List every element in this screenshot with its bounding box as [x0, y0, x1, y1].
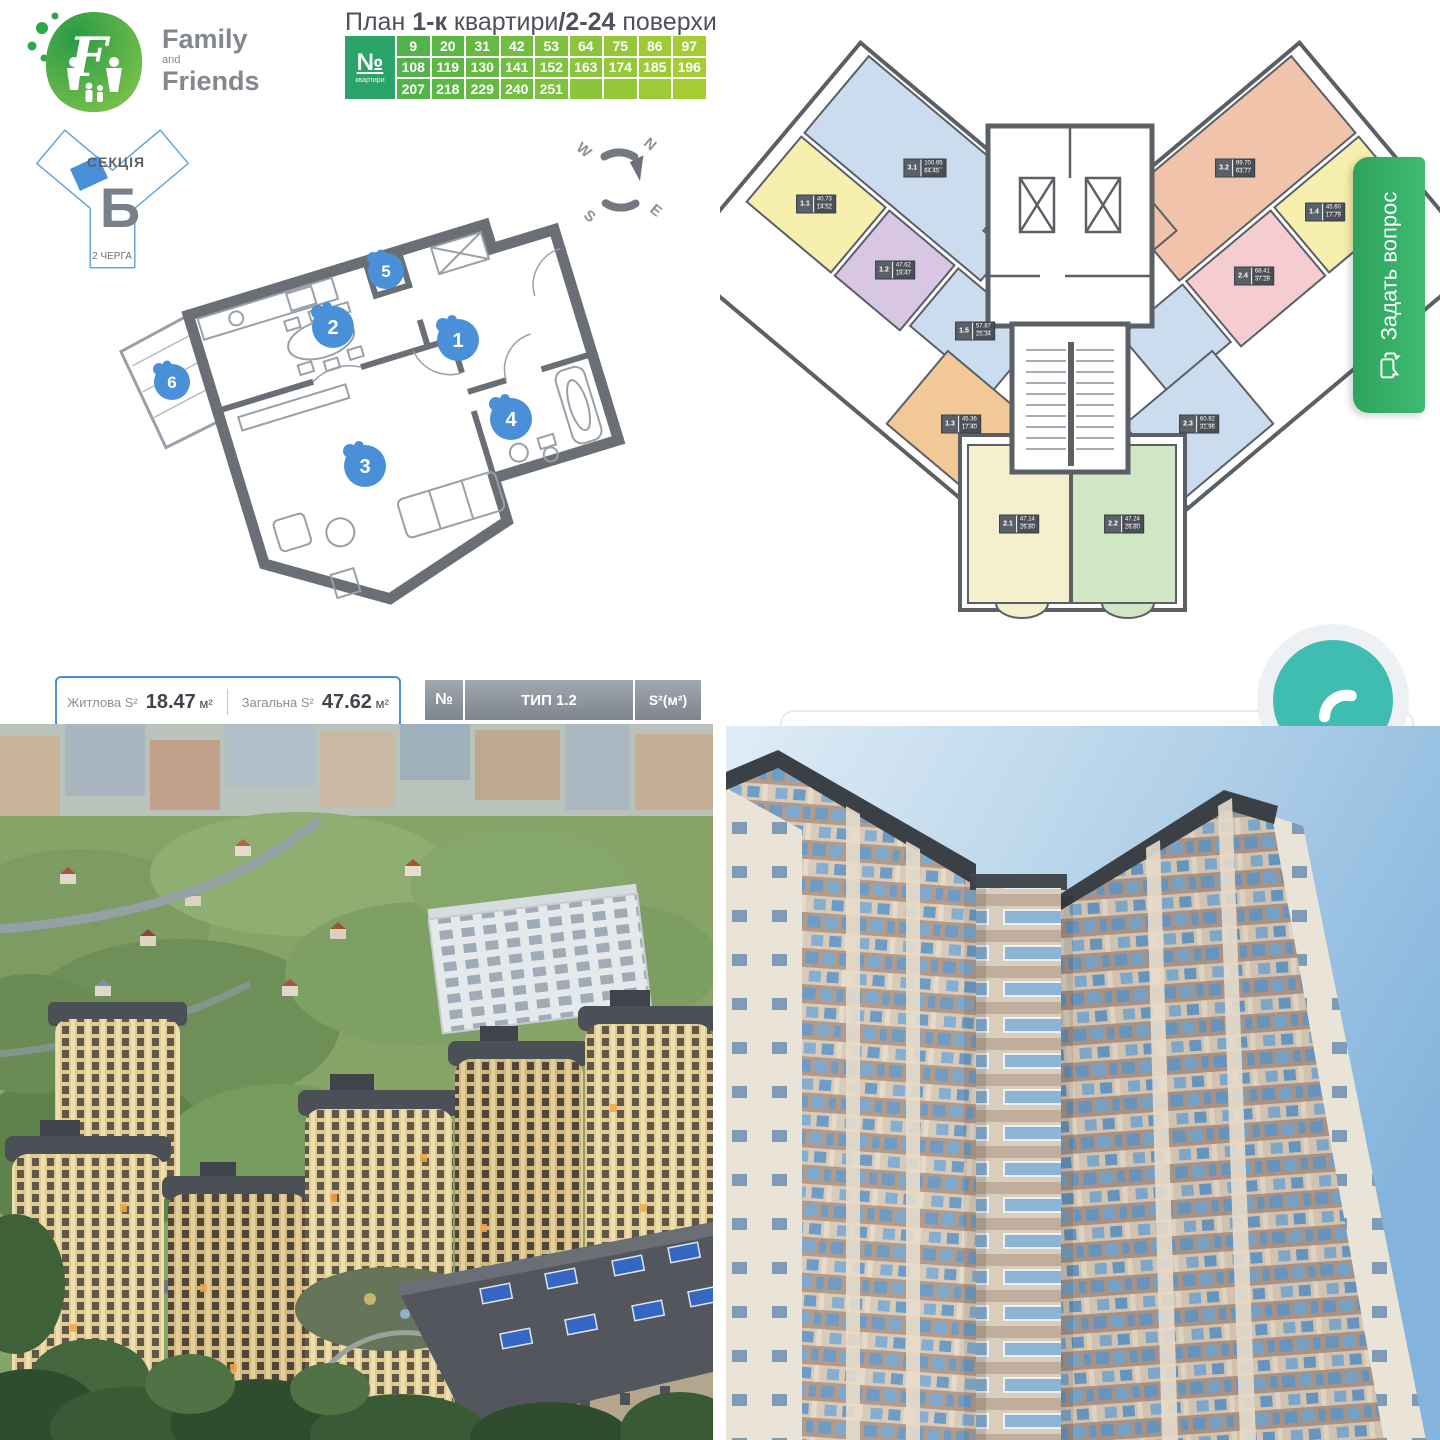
unit-id: 1.5 [956, 323, 973, 340]
unit-id: 1.4 [1306, 204, 1323, 221]
brand-friends: Friends [162, 68, 260, 95]
unit-id: 2.2 [1105, 516, 1122, 533]
brand-family: Family [162, 26, 260, 53]
apt-cell[interactable]: 9 [397, 36, 430, 56]
complex-aerial-render-photo [0, 724, 713, 1440]
total-area-value: 47.62 м² [322, 691, 389, 714]
building-facade-photo [726, 726, 1440, 1440]
apt-cell[interactable]: 75 [604, 36, 637, 56]
apt-cell[interactable]: 86 [639, 36, 672, 56]
unit-tag-3-2[interactable]: 3.2 99.7063.77 [1215, 159, 1255, 178]
unit-area-total: 47.62 [896, 263, 911, 270]
apt-cell[interactable]: 152 [535, 58, 568, 78]
unit-area-living: 25.34 [976, 331, 991, 339]
apt-cell-empty [604, 79, 637, 99]
unit-area-total: 57.87 [976, 324, 991, 331]
total-area-label: Загальна S² [242, 695, 314, 710]
svg-text:5: 5 [381, 262, 390, 281]
section-label: СЕКЦІЯ [87, 154, 145, 170]
apt-cell[interactable]: 240 [501, 79, 534, 99]
unit-id: 2.4 [1235, 268, 1252, 285]
family-friends-logo-icon: F [22, 4, 152, 116]
unit-area-total: 99.70 [1236, 161, 1251, 168]
apt-cell[interactable]: 42 [501, 36, 534, 56]
apt-cell[interactable]: 64 [570, 36, 603, 56]
svg-text:1: 1 [452, 330, 463, 352]
apt-cell[interactable]: 207 [397, 79, 430, 99]
apt-cell[interactable]: 97 [673, 36, 706, 56]
unit-id: 1.2 [876, 262, 893, 279]
apt-cell[interactable]: 251 [535, 79, 568, 99]
total-area-number: 47.62 [322, 691, 372, 713]
unit-area-total: 45.36 [962, 417, 977, 424]
page: F Family and Friends План 1-к квартири/2… [0, 0, 1440, 1440]
apt-cell-empty [673, 79, 706, 99]
living-area-unit: м² [199, 696, 212, 711]
unit-tag-1-3[interactable]: 1.3 45.3617.40 [941, 415, 981, 434]
unit-tag-1-2[interactable]: 1.2 47.6218.47 [875, 261, 915, 280]
chat-bubble-icon [1377, 352, 1401, 378]
total-area-unit: м² [376, 696, 389, 711]
compass-n: N [640, 134, 659, 154]
unit-id: 3.2 [1216, 160, 1233, 177]
apt-cell[interactable]: 141 [501, 58, 534, 78]
apt-cell[interactable]: 218 [432, 79, 465, 99]
unit-area-total: 47.24 [1125, 517, 1140, 524]
col-type: ТИП 1.2 [465, 680, 633, 720]
unit-area-living: 26.80 [1125, 524, 1140, 532]
unit-area-living: 63.77 [1236, 168, 1251, 176]
svg-text:4: 4 [505, 409, 517, 431]
unit-tag-1-5[interactable]: 1.5 57.8725.34 [955, 322, 995, 341]
unit-area-total: 40.73 [817, 197, 832, 204]
unit-area-living: 17.79 [1326, 212, 1341, 220]
unit-id: 1.1 [797, 196, 814, 213]
living-area-number: 18.47 [146, 691, 196, 713]
col-number: № [425, 680, 463, 720]
no-sub: квартири [355, 77, 384, 84]
unit-area-living: 17.40 [962, 424, 977, 432]
living-area-value: 18.47 м² [146, 691, 213, 714]
apartment-number-table: № квартири 9 20 31 42 53 64 75 86 97 108… [345, 36, 706, 99]
apt-cell[interactable]: 229 [466, 79, 499, 99]
apt-cell[interactable]: 119 [432, 58, 465, 78]
unit-id: 2.3 [1180, 416, 1197, 433]
unit-area-living: 26.80 [1020, 524, 1035, 532]
unit-tag-3-1[interactable]: 3.1 100.9564.45 [903, 159, 946, 178]
unit-id: 2.1 [1000, 516, 1017, 533]
unit-area-total: 100.95 [924, 161, 942, 168]
title-part: квартири [447, 8, 558, 36]
apt-cell[interactable]: 31 [466, 36, 499, 56]
brand-and: and [162, 55, 260, 66]
title-rooms: 1-к [412, 8, 447, 36]
apt-cell[interactable]: 130 [466, 58, 499, 78]
unit-area-living: 18.47 [896, 270, 911, 278]
apt-cell[interactable]: 185 [639, 58, 672, 78]
unit-tag-1-4[interactable]: 1.4 45.6017.79 [1305, 203, 1345, 222]
brand-logo: F Family and Friends [22, 4, 342, 116]
apt-cell-empty [570, 79, 603, 99]
title-part: поверхи [615, 8, 716, 36]
type-table-header: № ТИП 1.2 S²(м²) [425, 680, 701, 720]
apt-cell[interactable]: 20 [432, 36, 465, 56]
unit-area-living: 14.52 [817, 204, 832, 212]
col-area: S²(м²) [635, 680, 701, 720]
unit-id: 1.3 [942, 416, 959, 433]
phone-icon [1301, 668, 1365, 732]
apt-cell-empty [639, 79, 672, 99]
unit-tag-2-3[interactable]: 2.3 60.9231.96 [1179, 415, 1219, 434]
apt-cell[interactable]: 174 [604, 58, 637, 78]
apt-cell[interactable]: 163 [570, 58, 603, 78]
ask-question-button[interactable]: Задать вопрос [1353, 157, 1425, 413]
compass-e: E [646, 201, 665, 220]
apt-cell[interactable]: 108 [397, 58, 430, 78]
building-floor-plan [720, 20, 1440, 720]
apartment-number-header: № квартири [345, 36, 395, 99]
area-summary-box: Житлова S² 18.47 м² Загальна S² 47.62 м² [55, 676, 401, 728]
unit-area-total: 68.41 [1255, 269, 1270, 276]
title-floors: 2-24 [565, 8, 615, 36]
unit-tag-2-4[interactable]: 2.4 68.4137.28 [1234, 267, 1274, 286]
ask-question-label: Задать вопрос [1376, 192, 1402, 341]
title-part: План [345, 8, 412, 36]
apt-cell[interactable]: 196 [673, 58, 706, 78]
no-sign: № [357, 51, 384, 75]
unit-tag-1-1[interactable]: 1.1 40.7314.52 [796, 195, 836, 214]
living-area-label: Житлова S² [67, 695, 138, 710]
unit-tag-2-2[interactable]: 2.2 47.2426.80 [1104, 515, 1144, 534]
apartment-floor-plan: 1 2 3 4 5 [35, 212, 645, 667]
page-title: План 1-к квартири/2-24 поверхи [345, 8, 717, 37]
svg-text:2: 2 [327, 317, 338, 339]
svg-text:6: 6 [167, 373, 176, 392]
unit-id: 3.1 [904, 160, 921, 177]
unit-area-living: 31.96 [1200, 424, 1215, 432]
apt-cell[interactable]: 53 [535, 36, 568, 56]
unit-area-living: 64.45 [924, 168, 942, 176]
unit-area-total: 60.92 [1200, 417, 1215, 424]
unit-area-living: 37.28 [1255, 276, 1270, 284]
svg-text:3: 3 [359, 456, 370, 478]
unit-area-total: 47.14 [1020, 517, 1035, 524]
unit-tag-2-1[interactable]: 2.1 47.1426.80 [999, 515, 1039, 534]
compass-w: W [573, 139, 595, 162]
unit-area-total: 45.60 [1326, 205, 1341, 212]
divider [227, 689, 228, 715]
brand-name: Family and Friends [162, 26, 260, 95]
